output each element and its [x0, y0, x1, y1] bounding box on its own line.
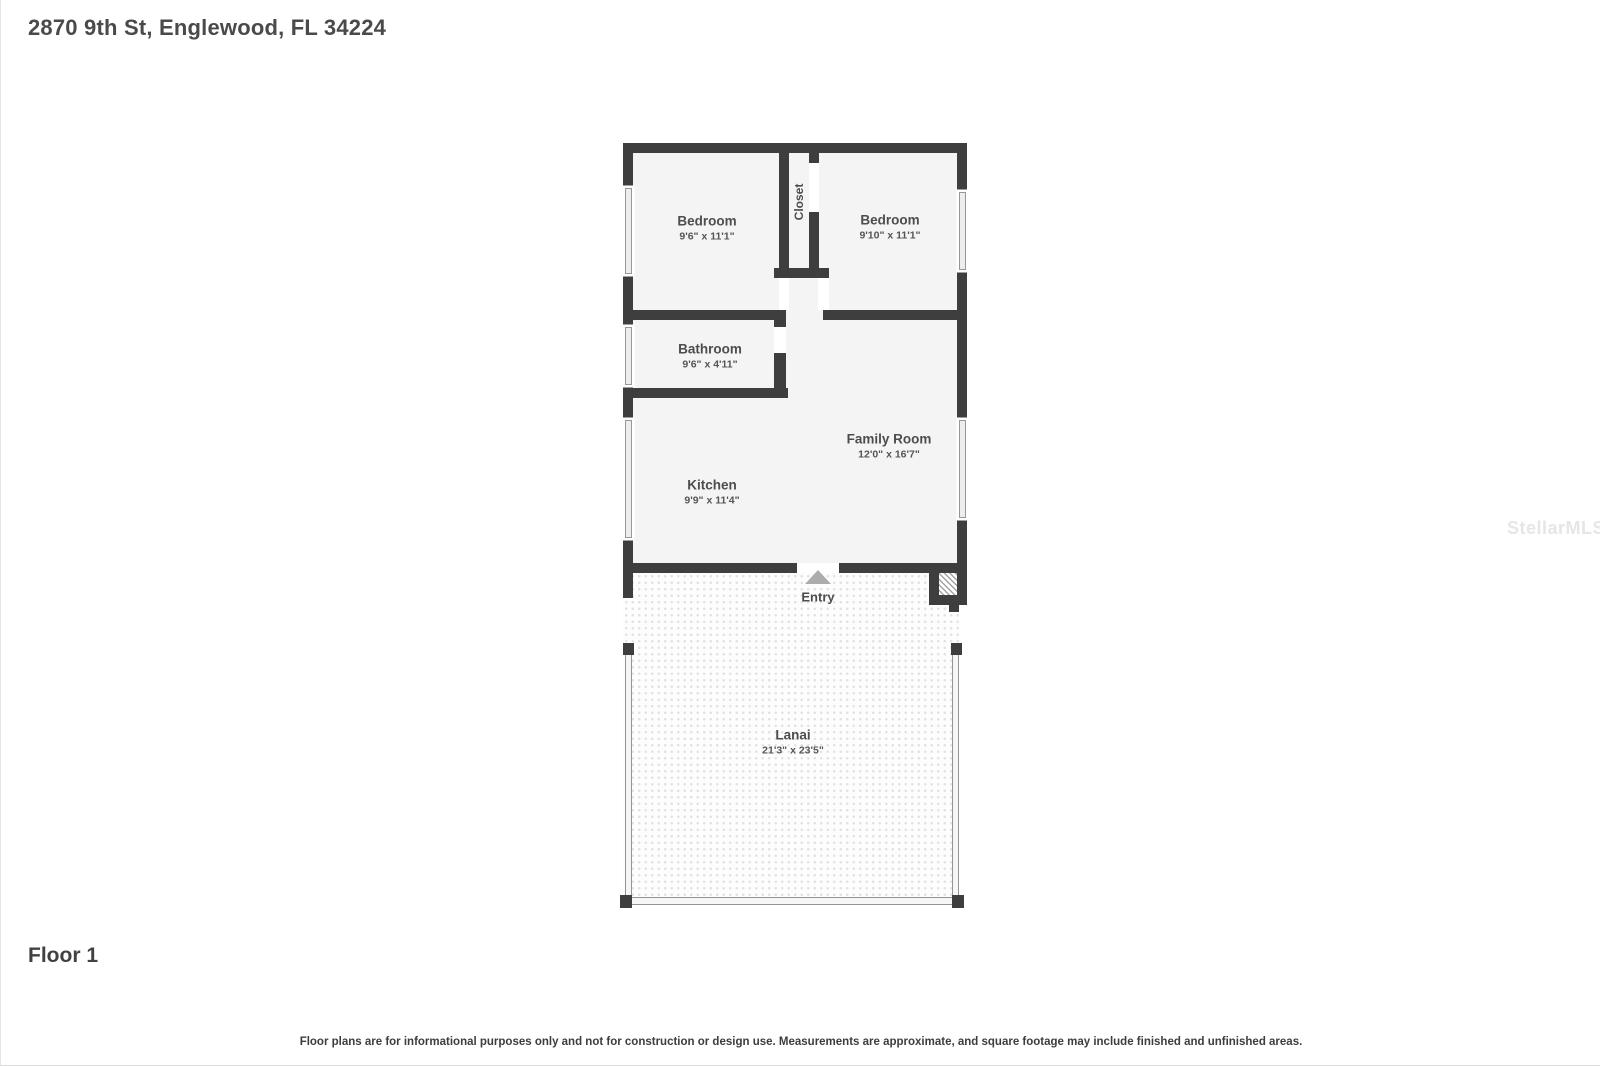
wall-bathroom-bottom	[623, 388, 788, 398]
floor-plan: Bedroom 9'6" x 11'1" Bedroom 9'10" x 11'…	[1, 0, 1600, 1066]
lanai-post-bottom-right	[952, 895, 964, 908]
floor-label: Floor 1	[28, 944, 98, 968]
room-label-bathroom: Bathroom 9'6" x 4'11"	[678, 340, 742, 371]
hatched-box-stub	[949, 605, 959, 612]
lanai-screen-right	[952, 652, 959, 900]
window-kitchen	[625, 420, 632, 538]
disclaimer-text: Floor plans are for informational purpos…	[1, 1036, 1600, 1048]
room-dims: 21'3" x 23'5"	[762, 744, 824, 758]
hatched-utility-box	[929, 573, 967, 605]
room-name: Bathroom	[678, 340, 742, 358]
wall-top	[623, 143, 967, 153]
room-label-family-room: Family Room 12'0" x 16'7"	[847, 430, 932, 461]
room-name: Kitchen	[684, 476, 739, 494]
window-bedroom2	[959, 192, 966, 270]
wall-bedroom1-bottom	[623, 310, 786, 320]
room-dims: 9'9" x 11'4"	[684, 494, 739, 508]
room-name: Lanai	[762, 726, 824, 744]
room-dims: 9'10" x 11'1"	[859, 229, 920, 243]
room-label-lanai: Lanai 21'3" x 23'5"	[762, 726, 824, 757]
window-family-room	[959, 420, 966, 518]
window-bedroom1	[625, 188, 632, 274]
wall-bathroom-right	[774, 310, 786, 398]
lanai-screen-bottom	[626, 897, 958, 905]
wall-closet-bottom	[774, 268, 829, 278]
room-name: Bedroom	[677, 212, 736, 230]
wall-closet-left	[779, 153, 789, 278]
entry-label: Entry	[801, 590, 834, 605]
lanai-screen-left	[625, 652, 632, 900]
closet-label: Closet	[792, 184, 806, 221]
door-closet	[809, 163, 819, 212]
room-label-bedroom-1: Bedroom 9'6" x 11'1"	[677, 212, 736, 243]
door-bedroom1	[779, 278, 789, 310]
room-label-bedroom-2: Bedroom 9'10" x 11'1"	[859, 211, 920, 242]
floor-plan-page: 2870 9th St, Englewood, FL 34224	[0, 0, 1600, 1066]
room-name: Family Room	[847, 430, 932, 448]
lanai-post-bottom-left	[620, 895, 632, 908]
room-name: Bedroom	[859, 211, 920, 229]
room-dims: 9'6" x 4'11"	[678, 358, 742, 372]
window-bathroom	[625, 327, 632, 385]
wall-bottom	[623, 563, 967, 573]
lanai-post-top-right	[951, 643, 962, 655]
stellar-mls-watermark: StellarMLS	[1507, 518, 1600, 539]
door-bedroom2	[818, 278, 829, 310]
lanai-post-top-left	[623, 643, 634, 655]
wall-bedroom2-bottom	[823, 310, 967, 320]
entry-arrow-icon	[805, 570, 831, 584]
room-label-kitchen: Kitchen 9'9" x 11'4"	[684, 476, 739, 507]
room-dims: 9'6" x 11'1"	[677, 230, 736, 244]
room-dims: 12'0" x 16'7"	[847, 448, 932, 462]
door-bathroom	[774, 327, 786, 353]
